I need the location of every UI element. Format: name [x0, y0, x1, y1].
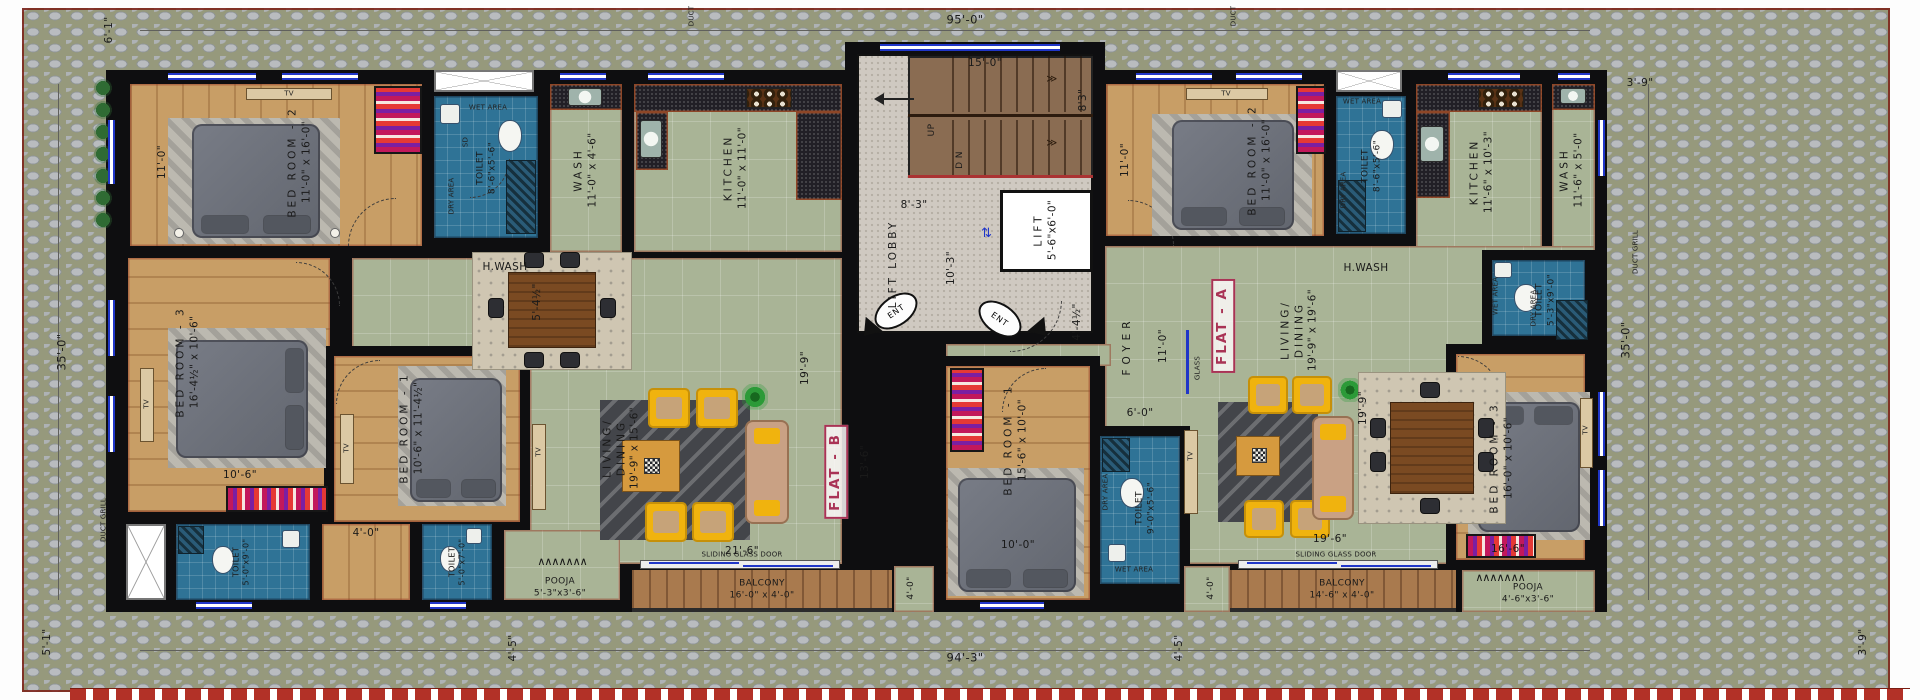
sofa-a	[1312, 416, 1354, 520]
window	[560, 73, 606, 80]
wet-area-label: WET AREA	[1343, 97, 1381, 106]
tv-label: TV	[1186, 451, 1195, 460]
armchair	[696, 388, 738, 428]
dim-label: 6'-0"	[1127, 407, 1154, 421]
wardrobe	[950, 368, 984, 452]
wash-basin	[1382, 100, 1402, 118]
armchair	[1248, 376, 1288, 414]
hwash-label-a: H.WASH	[1344, 262, 1389, 276]
dim-label: 11'-0"	[156, 145, 170, 179]
shower-area	[178, 526, 204, 554]
stair-arrow-line	[884, 98, 914, 100]
dining-chair	[1370, 418, 1386, 438]
lift-door-arrows: ⇄	[980, 226, 997, 237]
window	[880, 44, 1060, 51]
flat-b-badge: FLAT - B	[824, 425, 848, 519]
window	[282, 73, 358, 80]
stairs-down-label: D N	[955, 151, 967, 169]
room-label-bedroom3-b: BED ROOM - 316'-4½" x 10'-6"	[174, 306, 201, 417]
duct-grill-label: DUCT GRILL	[1631, 230, 1640, 274]
shower-area	[1102, 438, 1130, 472]
duct-label: DUCT	[687, 6, 696, 26]
room-label-wash-b: WASH11'-0" x 4'-6"	[572, 133, 599, 208]
window	[1598, 120, 1605, 176]
dim-label: 16'-6"	[1491, 543, 1525, 557]
duct-grill-label: DUCT GRILL	[99, 498, 108, 542]
shaft-b-bottom	[126, 524, 166, 600]
room-label-toilet-a2: TOILET8'-6"x5'-6"	[1360, 140, 1383, 192]
window	[1598, 470, 1605, 526]
dim-line-top	[140, 30, 1590, 31]
floor-plan: ∧∧∧∧∧∧∧ ∧∧∧∧∧∧∧ ENT ENT	[0, 0, 1920, 700]
dim-label: 11'-0"	[1119, 143, 1133, 177]
window	[648, 73, 724, 80]
wash-basin	[440, 104, 460, 124]
sliding-door-label-a: SLIDING GLASS DOOR	[1295, 550, 1376, 559]
dim-offset-left: 4'-5"	[507, 635, 521, 662]
tv-label: TV	[342, 443, 351, 452]
tv-label: TV	[1221, 89, 1230, 98]
window	[108, 300, 115, 356]
sink	[1420, 126, 1444, 162]
stair-flight-down	[952, 120, 1093, 178]
window	[1448, 73, 1520, 80]
sink	[640, 120, 662, 158]
dim-label: 4'-0"	[906, 576, 918, 599]
room-label-toilet-b2: TOILET8'-6"x5'-6"	[475, 142, 498, 194]
sliding-door-b	[640, 560, 840, 569]
bed-bedroom2-a	[1172, 120, 1294, 230]
dim-label: 10'-6"	[223, 469, 257, 483]
wardrobe	[374, 86, 422, 154]
wardrobe	[226, 486, 328, 512]
flat-a-badge: FLAT - A	[1211, 279, 1235, 373]
armchair	[1244, 500, 1284, 538]
dining-table-a	[1390, 402, 1474, 494]
dim-corner-bottom-right: 3'-9"	[1857, 629, 1871, 656]
dim-label: 5'-4½"	[531, 283, 545, 320]
wash-basin	[466, 528, 482, 544]
dim-label: 11'-0"	[1157, 329, 1171, 363]
hwash-label-b: H.WASH	[483, 261, 528, 275]
duct-label: DUCT	[1229, 6, 1238, 26]
tv-label: TV	[284, 89, 293, 98]
foyer-label: FOYER	[1121, 316, 1135, 375]
dim-label: 19'-6"	[1313, 533, 1347, 547]
chess-board	[644, 458, 660, 474]
stair-chevron: ≫	[1046, 137, 1057, 151]
tv-label: TV	[1581, 425, 1590, 434]
duct-shaft-a	[1336, 70, 1402, 92]
window	[1136, 73, 1212, 80]
room-label-living-b: LIVING/DINING 19'-9" x 15'-6"	[602, 407, 643, 489]
kitchen-b-counter-side	[796, 112, 842, 200]
dining-chair	[488, 298, 504, 318]
room-label-balcony-b: BALCONY16'-0" x 4'-0"	[729, 578, 794, 601]
armchair	[645, 502, 687, 542]
window	[1598, 392, 1605, 456]
dim-plot-bottom: 94'-3"	[947, 651, 984, 666]
room-label-living-a: LIVING/DINING 19'-9" x 19'-6"	[1280, 289, 1321, 371]
stair-divider	[908, 114, 1093, 117]
dry-area-label: DRY AREA	[1339, 172, 1348, 209]
dim-label-lobby-length: 10'-3"	[945, 251, 959, 285]
sink	[1560, 88, 1586, 104]
lamp	[330, 228, 340, 238]
sink	[568, 88, 602, 106]
dim-plot-right: 35'-0"	[1619, 322, 1634, 359]
shower-area	[506, 160, 536, 234]
stove	[1478, 88, 1524, 108]
wash-basin	[282, 530, 300, 548]
glass-partition	[1186, 330, 1189, 394]
dim-label-lobby: 8'-3"	[901, 199, 928, 213]
room-label-kitchen-a: KITCHEN11'-6" x 10'-3"	[1468, 131, 1495, 213]
dim-label: 19'-9"	[1357, 391, 1371, 425]
lift-label: LIFT5'-6"x6'-0"	[1032, 200, 1059, 260]
stair-red-edge	[908, 175, 1093, 178]
dim-label-stairs: 15'-0"	[968, 57, 1002, 71]
wet-area-label: WET AREA	[469, 103, 507, 112]
room-label-bedroom1-b: BED ROOM - 110'-6" x 11'-4½"	[398, 372, 425, 483]
room-label-balcony-a: BALCONY14'-6" x 4'-0"	[1309, 578, 1374, 601]
dim-line-bottom	[140, 650, 1590, 651]
stairs-up-label: UP	[927, 124, 939, 137]
dining-chair	[524, 352, 544, 368]
tv-unit	[1184, 430, 1198, 514]
pooja-shelf: ∧∧∧∧∧∧∧	[537, 555, 586, 569]
window	[1236, 73, 1302, 80]
dim-label: 4'-0"	[1206, 576, 1218, 599]
sliding-door-a	[1238, 560, 1438, 569]
dining-chair	[560, 252, 580, 268]
wc	[498, 120, 522, 152]
room-label-toilet-a-master: TOILET9'-0"x5'-6"	[1134, 482, 1157, 534]
dim-corner-top-right: 3'-9"	[1627, 77, 1654, 91]
room-label-bedroom1-a: BED ROOM - 115'-6" x 10'-0"	[1002, 384, 1029, 495]
wardrobe	[1296, 86, 1326, 154]
stair-arrow-head	[874, 93, 884, 105]
armchair	[648, 388, 690, 428]
dining-chair	[1370, 452, 1386, 472]
shower-area	[1556, 300, 1588, 340]
kitchen-b-counter-top	[634, 84, 842, 112]
glass-label: GLASS	[1193, 356, 1202, 380]
lift-lobby-label: LIFT LOBBY	[887, 220, 901, 309]
dim-line-right	[1648, 84, 1649, 600]
window	[1558, 73, 1590, 80]
dining-chair	[600, 298, 616, 318]
window	[108, 120, 115, 184]
plant	[742, 384, 768, 410]
tv-label: TV	[142, 399, 151, 408]
wash-basin	[1494, 262, 1512, 278]
dim-label: 4'-0"	[353, 527, 380, 541]
window	[196, 602, 252, 609]
dining-chair	[1420, 498, 1440, 514]
dim-label: 13'-6"	[859, 445, 873, 479]
room-label-wash-a: WASH11'-6" x 5'-0"	[1558, 133, 1585, 208]
lamp	[174, 228, 184, 238]
room-label-kitchen-b: KITCHEN11'-0" x 11'-0"	[722, 127, 749, 209]
entrance-a-label: ENT	[990, 310, 1011, 328]
room-label-bedroom2-b: BED ROOM - 211'-0" x 16'-0"	[286, 106, 313, 217]
armchair	[692, 502, 734, 542]
window	[168, 73, 256, 80]
room-label-toilet-b-common: TOILET5'-0"x7'-0"	[448, 538, 469, 585]
wet-area-label: WET AREA	[1115, 565, 1153, 574]
dim-plot-left: 35'-0"	[55, 334, 70, 371]
window	[980, 602, 1044, 609]
wash-basin	[1108, 544, 1126, 562]
window	[430, 602, 466, 609]
room-label-toilet-b-master: TOILET5'-0"x9'-0"	[232, 538, 253, 585]
tv-label: TV	[534, 447, 543, 456]
compound-wall	[70, 688, 1910, 700]
sofa-b	[745, 420, 789, 524]
stove	[746, 88, 792, 108]
wet-area-label: WET AREA	[1491, 277, 1500, 315]
dry-area-label: DRY AREA	[1529, 290, 1538, 327]
dim-label: 4'-4½"	[1071, 303, 1085, 340]
window	[108, 396, 115, 452]
dim-plot-top: 95'-0"	[947, 13, 984, 28]
sd-label: SD	[461, 137, 470, 147]
dim-corner-bottom-left: 5'-1"	[41, 629, 55, 656]
dim-offset-right: 4'-5"	[1173, 635, 1187, 662]
room-label-pooja-a: POOJA4'-6"x3'-6"	[1502, 582, 1554, 605]
dim-label-stairs-depth: 8'3"	[1077, 89, 1091, 112]
dry-area-label: DRY AREA	[1101, 474, 1110, 511]
armchair	[1292, 376, 1332, 414]
dry-area-label: DRY AREA	[447, 178, 456, 215]
dim-label: 10'-0"	[1001, 539, 1035, 553]
dim-corner-top-left: 6'-1"	[103, 17, 117, 44]
duct-shaft-b	[434, 70, 534, 92]
dim-label: 19'-9"	[799, 351, 813, 385]
stair-chevron: ≫	[1046, 73, 1057, 87]
tv-unit	[532, 424, 546, 510]
room-label-bedroom2-a: BED ROOM - 211'-0" x 16'-0"	[1246, 104, 1273, 215]
dining-chair	[1420, 382, 1440, 398]
dining-chair	[560, 352, 580, 368]
balcony-b-rail	[632, 608, 892, 612]
room-label-bedroom3-a: BED ROOM - 316'-0" x 10'-6"	[1488, 402, 1515, 513]
room-label-pooja-b: POOJA5'-3"x3'-6"	[534, 576, 586, 599]
balcony-a-rail	[1230, 608, 1456, 612]
chess-board	[1252, 448, 1267, 463]
dim-label: 21'-6"	[725, 545, 759, 559]
dining-table-b	[508, 272, 596, 348]
